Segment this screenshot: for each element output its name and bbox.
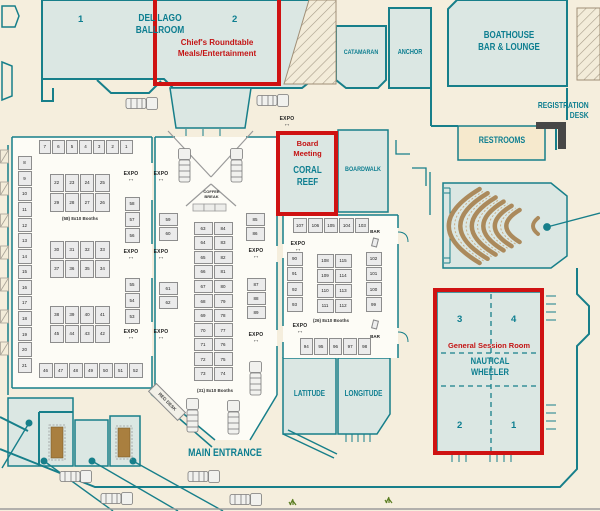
booth-row: 22232425 [49, 173, 110, 193]
coral-line2: REEF [297, 177, 318, 188]
booth-61: 61 [159, 282, 178, 295]
left-hall-right-col-bottom: 555453 [124, 277, 140, 324]
booth-97: 97 [343, 338, 357, 355]
booth-51: 51 [114, 363, 128, 378]
del-lago-section-2: 2 [232, 14, 237, 25]
booth-2: 2 [106, 140, 119, 154]
booth-83: 83 [214, 236, 233, 250]
booth-94: 94 [300, 338, 314, 355]
booth-row: 45444342 [49, 324, 110, 343]
booth-81: 81 [214, 265, 233, 279]
booth-113: 113 [335, 284, 352, 298]
booth-82: 82 [214, 251, 233, 265]
expo-marker: EXPO↔ [120, 171, 142, 182]
booth-80: 80 [214, 280, 233, 294]
booth-16: 16 [18, 280, 32, 295]
left-hall-left-col: 89101112131415161718192021 [17, 155, 32, 373]
booth-4: 4 [79, 140, 92, 154]
nautical-q3: 3 [457, 314, 462, 325]
booth-34: 34 [95, 260, 109, 278]
anchor-room [389, 8, 431, 88]
nautical-line2: WHEELER [471, 367, 509, 378]
left-hall-block-3: 3839404145444342 [49, 305, 110, 343]
bar-icon [371, 319, 379, 329]
center-hall-double-column: 6384648365826681678068796978707771767275… [193, 221, 233, 381]
booth-20: 20 [18, 342, 32, 357]
booth-40: 40 [80, 306, 94, 324]
booth-58: 58 [125, 197, 140, 212]
booth-69: 69 [194, 309, 213, 323]
booth-100: 100 [366, 282, 382, 296]
center-hall-right-bottom: 878889 [246, 277, 266, 320]
booth-26: 26 [95, 193, 109, 212]
booth-12: 12 [18, 218, 32, 233]
booth-11: 11 [18, 202, 32, 217]
boathouse-line1: BOATHOUSE [484, 30, 535, 41]
right-hall-count: (26) 8x10 Booths [300, 318, 362, 323]
left-hall-bottom-row: 46474849505152 [38, 362, 143, 378]
booth-32: 32 [80, 241, 94, 259]
truck-icon [231, 149, 243, 183]
booth-31: 31 [65, 241, 79, 259]
booth-77: 77 [214, 323, 233, 337]
expo-marker: EXPO↔ [245, 248, 267, 259]
booth-102: 102 [366, 252, 382, 266]
nautical-wheeler-label: NAUTICAL WHEELER [450, 357, 530, 379]
coffee-break-label: COFFEE BREAK [197, 189, 226, 199]
booth-23: 23 [65, 174, 79, 193]
booth-87: 87 [247, 278, 266, 291]
registration-line2: DESK [570, 110, 589, 120]
center-hall-right-top: 8586 [245, 212, 265, 241]
booth-18: 18 [18, 311, 32, 326]
booth-101: 101 [366, 267, 382, 281]
bar-icon [371, 237, 379, 247]
booth-68: 68 [194, 294, 213, 308]
booth-28: 28 [65, 193, 79, 212]
booth-90: 90 [287, 252, 303, 266]
del-lago-label: DEL LAGO BALLROOM [116, 12, 204, 36]
booth-91: 91 [287, 267, 303, 281]
booth-104: 104 [339, 218, 354, 233]
booth-38: 38 [50, 306, 64, 324]
boathouse-label: BOATHOUSE BAR & LOUNGE [463, 30, 554, 53]
booth-41: 41 [95, 306, 109, 324]
booth-63: 63 [194, 222, 213, 236]
expo-marker: EXPO↔ [289, 323, 311, 334]
bar-label: BAR [367, 334, 383, 339]
booth-row: 6384 [193, 221, 233, 236]
booth-98: 98 [358, 338, 372, 355]
board-line1: Board [297, 139, 319, 148]
truck-icon [179, 149, 191, 183]
booth-111: 111 [317, 299, 334, 313]
center-hall-left-bottom: 6162 [158, 281, 178, 309]
restrooms-label: RESTROOMS [468, 135, 535, 145]
booth-73: 73 [194, 367, 213, 381]
booth-74: 74 [214, 367, 233, 381]
truck-icon [101, 493, 133, 505]
del-lago-section-1: 1 [78, 14, 83, 25]
nautical-q2: 2 [457, 420, 462, 431]
booth-row: 7077 [193, 323, 233, 338]
booth-76: 76 [214, 338, 233, 352]
truck-icon [257, 95, 289, 107]
expo-arrow-icon: ↔ [245, 254, 267, 259]
booth-14: 14 [18, 249, 32, 264]
convention-center-floorplan: DEL LAGO BALLROOM 1 2 Chief's Roundtable… [0, 0, 600, 511]
booth-110: 110 [317, 284, 334, 298]
coral-reef-label: CORAL REEF [286, 165, 328, 188]
bar-marker: BAR [367, 229, 383, 252]
truck-icon [188, 471, 220, 483]
booth-row: 6780 [193, 279, 233, 294]
booth-39: 39 [65, 306, 79, 324]
latitude-label: LATITUDE [288, 389, 330, 398]
booth-99: 99 [366, 297, 382, 311]
left-hall-block-1: 2223242529282726 [49, 173, 110, 212]
booth-33: 33 [95, 241, 109, 259]
coffee-line2: BREAK [204, 194, 218, 199]
chiefs-line1: Chief's Roundtable [181, 38, 254, 47]
booth-43: 43 [80, 325, 94, 343]
center-hall-count: (31) 8x10 Booths [186, 388, 244, 393]
general-session-annotation: General Session Room [440, 342, 538, 351]
booth-24: 24 [80, 174, 94, 193]
booth-96: 96 [329, 338, 343, 355]
booth-9: 9 [18, 171, 32, 186]
registration-line1: REGISTRATION [538, 100, 589, 110]
booth-70: 70 [194, 323, 213, 337]
coral-line1: CORAL [293, 165, 321, 176]
booth-75: 75 [214, 352, 233, 366]
booth-10: 10 [18, 187, 32, 202]
anchor-label: ANCHOR [392, 49, 429, 57]
booth-95: 95 [314, 338, 328, 355]
expo-arrow-icon: ↔ [289, 329, 311, 334]
booth-row: 29282726 [49, 193, 110, 213]
booth-row: 7374 [193, 366, 233, 381]
coffee-break-tables [193, 204, 226, 211]
booth-65: 65 [194, 251, 213, 265]
truck-icon [126, 98, 158, 110]
expo-marker: EXPO↔ [276, 116, 298, 127]
booth-72: 72 [194, 352, 213, 366]
booth-row: 108115 [316, 253, 352, 268]
booth-1: 1 [120, 140, 133, 154]
booth-59: 59 [159, 213, 178, 227]
booth-row: 7176 [193, 337, 233, 352]
boardwalk-label: BOARDWALK [341, 166, 386, 174]
booth-49: 49 [84, 363, 98, 378]
truck-icon [228, 401, 240, 435]
booth-57: 57 [125, 212, 140, 227]
right-hall-bottom-row: 9495969798 [299, 337, 372, 355]
booth-row: 109114 [316, 268, 352, 283]
booth-19: 19 [18, 327, 32, 342]
booth-row: 38394041 [49, 305, 110, 324]
registration-desk-label: REGISTRATION DESK [514, 101, 588, 121]
expo-marker: EXPO↔ [120, 329, 142, 340]
booth-114: 114 [335, 269, 352, 283]
booth-row: 37363534 [49, 259, 110, 278]
booth-108: 108 [317, 254, 334, 268]
expo-arrow-icon: ↔ [150, 177, 172, 182]
booth-85: 85 [246, 213, 265, 227]
booth-row: 6483 [193, 236, 233, 251]
booth-row: 111112 [316, 298, 352, 313]
right-hall-right-col: 10210110099 [365, 251, 382, 312]
booth-27: 27 [80, 193, 94, 212]
booth-79: 79 [214, 294, 233, 308]
booth-15: 15 [18, 265, 32, 280]
booth-35: 35 [80, 260, 94, 278]
left-hall-count: (58) 8x10 Booths [44, 216, 116, 221]
booth-78: 78 [214, 309, 233, 323]
left-hall-block-2: 3031323337363534 [49, 240, 110, 278]
catamaran-label: CATAMARAN [339, 49, 384, 57]
booth-44: 44 [65, 325, 79, 343]
chiefs-roundtable-annotation: Chief's Roundtable Meals/Entertainment [158, 37, 276, 59]
booth-row: 6879 [193, 294, 233, 309]
expo-marker: EXPO↔ [150, 329, 172, 340]
booth-21: 21 [18, 358, 32, 373]
booth-6: 6 [52, 140, 65, 154]
right-hall-center-block: 108115109114110113111112 [316, 253, 352, 313]
vestibule [170, 88, 251, 128]
booth-row: 7275 [193, 352, 233, 367]
booth-3: 3 [93, 140, 106, 154]
expo-arrow-icon: ↔ [120, 177, 142, 182]
booth-92: 92 [287, 282, 303, 296]
booth-107: 107 [293, 218, 308, 233]
truck-icon [187, 399, 199, 433]
booth-45: 45 [50, 325, 64, 343]
center-hall-left-top: 5960 [158, 212, 178, 241]
booth-109: 109 [317, 269, 334, 283]
booth-row: 6681 [193, 265, 233, 280]
expo-arrow-icon: ↔ [276, 122, 298, 127]
boathouse-line2: BAR & LOUNGE [478, 42, 540, 53]
expo-marker: EXPO↔ [150, 249, 172, 260]
booth-105: 105 [324, 218, 339, 233]
booth-row: 6582 [193, 250, 233, 265]
booth-17: 17 [18, 296, 32, 311]
expo-marker: EXPO↔ [150, 171, 172, 182]
booth-112: 112 [335, 299, 352, 313]
board-line2: Meeting [293, 149, 321, 158]
expo-arrow-icon: ↔ [150, 255, 172, 260]
booth-29: 29 [50, 193, 64, 212]
booth-47: 47 [54, 363, 68, 378]
booth-46: 46 [39, 363, 53, 378]
board-meeting-annotation: Board Meeting [281, 139, 334, 159]
expo-marker: EXPO↔ [287, 241, 309, 252]
bar-marker: BAR [367, 316, 383, 339]
truck-icon [250, 362, 262, 396]
catamaran-room [336, 26, 386, 88]
booth-106: 106 [308, 218, 323, 233]
bar-label: BAR [367, 229, 383, 234]
booth-55: 55 [125, 278, 140, 293]
booth-53: 53 [125, 309, 140, 324]
right-hall-left-col: 90919293 [286, 251, 303, 312]
booth-71: 71 [194, 338, 213, 352]
booth-50: 50 [99, 363, 113, 378]
booth-48: 48 [69, 363, 83, 378]
booth-13: 13 [18, 233, 32, 248]
right-hall-top-row: 107106105104103 [292, 217, 370, 233]
nautical-q1: 1 [511, 420, 516, 431]
expo-arrow-icon: ↔ [245, 338, 267, 343]
booth-7: 7 [39, 140, 52, 154]
booth-36: 36 [65, 260, 79, 278]
booth-84: 84 [214, 222, 233, 236]
nautical-line1: NAUTICAL [471, 356, 510, 367]
booth-88: 88 [247, 292, 266, 305]
booth-93: 93 [287, 297, 303, 311]
expo-arrow-icon: ↔ [120, 335, 142, 340]
booth-row: 30313233 [49, 240, 110, 259]
expo-marker: EXPO↔ [245, 332, 267, 343]
plant-icons [289, 497, 392, 505]
truck-icon [60, 471, 92, 483]
booth-row: 6978 [193, 308, 233, 323]
booth-115: 115 [335, 254, 352, 268]
booth-60: 60 [159, 227, 178, 241]
hatched-area-right [577, 8, 600, 80]
booth-67: 67 [194, 280, 213, 294]
booth-30: 30 [50, 241, 64, 259]
booth-5: 5 [66, 140, 79, 154]
booth-8: 8 [18, 156, 32, 171]
chiefs-line2: Meals/Entertainment [178, 49, 256, 58]
booth-row: 110113 [316, 283, 352, 298]
booth-37: 37 [50, 260, 64, 278]
truck-icon [230, 494, 262, 506]
left-hall-right-col-top: 585756 [124, 196, 140, 243]
expo-arrow-icon: ↔ [150, 335, 172, 340]
main-entrance-label: MAIN ENTRANCE [177, 447, 273, 460]
booth-89: 89 [247, 306, 266, 319]
expo-arrow-icon: ↔ [120, 255, 142, 260]
booth-42: 42 [95, 325, 109, 343]
longitude-label: LONGITUDE [342, 389, 386, 398]
booth-22: 22 [50, 174, 64, 193]
booth-56: 56 [125, 228, 140, 243]
booth-52: 52 [129, 363, 143, 378]
booth-62: 62 [159, 296, 178, 309]
expo-arrow-icon: ↔ [287, 247, 309, 252]
booth-25: 25 [95, 174, 109, 193]
booth-64: 64 [194, 236, 213, 250]
booth-66: 66 [194, 265, 213, 279]
left-hall-top-row: 7654321 [38, 139, 133, 154]
expo-marker: EXPO↔ [120, 249, 142, 260]
nautical-q4: 4 [511, 314, 516, 325]
booth-86: 86 [246, 227, 265, 241]
booth-54: 54 [125, 293, 140, 308]
